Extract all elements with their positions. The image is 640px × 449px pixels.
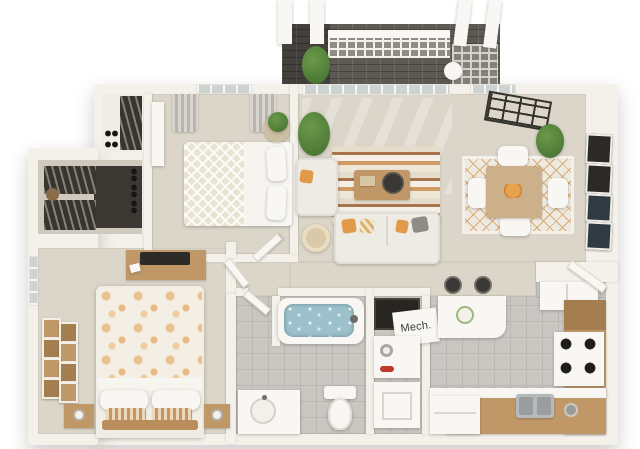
bar-stool-2 — [474, 276, 492, 294]
wall-art-4 — [585, 221, 612, 250]
vanity-faucet — [262, 395, 267, 400]
washer-dial — [380, 344, 393, 357]
master-window — [29, 256, 38, 306]
dining-chair-right — [548, 178, 568, 208]
kitchen-upper-cabinet — [564, 300, 606, 330]
bedroom2-basket-plant — [268, 112, 288, 132]
walkin-basket — [46, 188, 59, 201]
sofa-pillow-orange-1 — [341, 218, 357, 234]
balcony-railing-top — [328, 30, 450, 38]
toilet-bowl — [328, 398, 352, 430]
bedroom2-pillow-2 — [266, 185, 287, 220]
master-lamp-left — [73, 409, 85, 421]
wall-art-3 — [585, 193, 612, 222]
walkin-shoes-1 — [131, 168, 138, 184]
loveseat-pillow — [299, 169, 314, 184]
coffee-table-books — [360, 176, 375, 186]
living-plant — [298, 112, 330, 156]
master-frame-4 — [59, 342, 78, 363]
master-bed-duvet — [98, 288, 202, 380]
dining-chair-left — [468, 178, 488, 208]
shoe-closet-shoes-1 — [104, 130, 120, 137]
balcony-column-1 — [278, 0, 292, 44]
bathtub-water — [284, 304, 354, 337]
sofa-pillow-patterned — [359, 218, 374, 233]
bedroom2-curtain-left — [172, 94, 198, 132]
sofa-pillow-gray — [411, 216, 429, 234]
master-frame-6 — [59, 362, 78, 383]
living-pouf — [302, 224, 330, 252]
shoe-closet-shoes-2 — [104, 141, 120, 148]
stove-burner-1 — [560, 338, 572, 350]
kitchen-sink-basin-left — [519, 397, 533, 415]
master-frame-2 — [59, 322, 78, 343]
walkin-shoes-2 — [131, 184, 138, 200]
master-pillow-1 — [100, 390, 148, 410]
master-headboard — [96, 430, 204, 438]
shoe-closet-clothes — [120, 96, 142, 150]
master-tv — [140, 252, 190, 265]
dining-chair-bottom — [500, 216, 530, 236]
bedroom2-wardrobe — [152, 102, 164, 166]
wall-master-hall-upper — [226, 242, 236, 258]
master-lamp-right — [211, 409, 223, 421]
master-foot-blanket — [102, 420, 198, 430]
loveseat — [296, 158, 338, 216]
balcony-railing-lattice — [328, 38, 450, 58]
dining-centerpiece — [504, 184, 522, 198]
walkin-clothes-bottom — [44, 200, 96, 230]
coffee-table-tray — [382, 172, 404, 194]
dining-chair-top — [498, 146, 528, 166]
dining-plant — [536, 124, 564, 158]
mech-label: Mech. — [400, 319, 432, 335]
master-frame-8 — [59, 382, 78, 403]
sofa-pillow-orange-2 — [395, 219, 409, 234]
wall-art-2 — [585, 163, 613, 194]
master-bed-fold — [98, 378, 202, 390]
wall-laundry-top — [374, 288, 430, 296]
dryer-door — [382, 392, 412, 420]
bedroom2-pillow-1 — [266, 146, 287, 181]
wall-art-1 — [585, 133, 613, 164]
washer-detail — [380, 366, 394, 372]
bar-decor-plate — [456, 306, 474, 324]
balcony-column-2 — [310, 0, 324, 44]
wall-hall-bath-right — [278, 288, 366, 296]
bedroom2-window — [196, 84, 252, 94]
vanity-sink — [250, 398, 276, 424]
dishwasher-drawer-line — [434, 412, 476, 414]
kitchen-sink-basin-right — [537, 397, 551, 415]
floor-plan-render: Mech. — [0, 0, 640, 449]
bar-stool-1 — [444, 276, 462, 294]
bedroom2-bed-throw — [184, 142, 244, 226]
sofa-cushion-line — [386, 216, 388, 246]
bathtub-faucet — [350, 315, 358, 323]
stove-burner-3 — [560, 362, 572, 374]
balcony-plant — [302, 46, 330, 84]
stove-burner-4 — [584, 362, 596, 374]
kitchen-kettle — [564, 403, 578, 417]
balcony-sliding-door — [302, 84, 450, 95]
walkin-shoes-3 — [131, 200, 138, 216]
balcony-side-table — [444, 62, 462, 80]
dishwasher — [430, 396, 480, 434]
master-pillow-2 — [152, 390, 200, 410]
stove-burner-2 — [584, 338, 596, 350]
wall-bedroom2-closets — [144, 94, 152, 254]
wall-bath-laundry — [366, 288, 374, 434]
